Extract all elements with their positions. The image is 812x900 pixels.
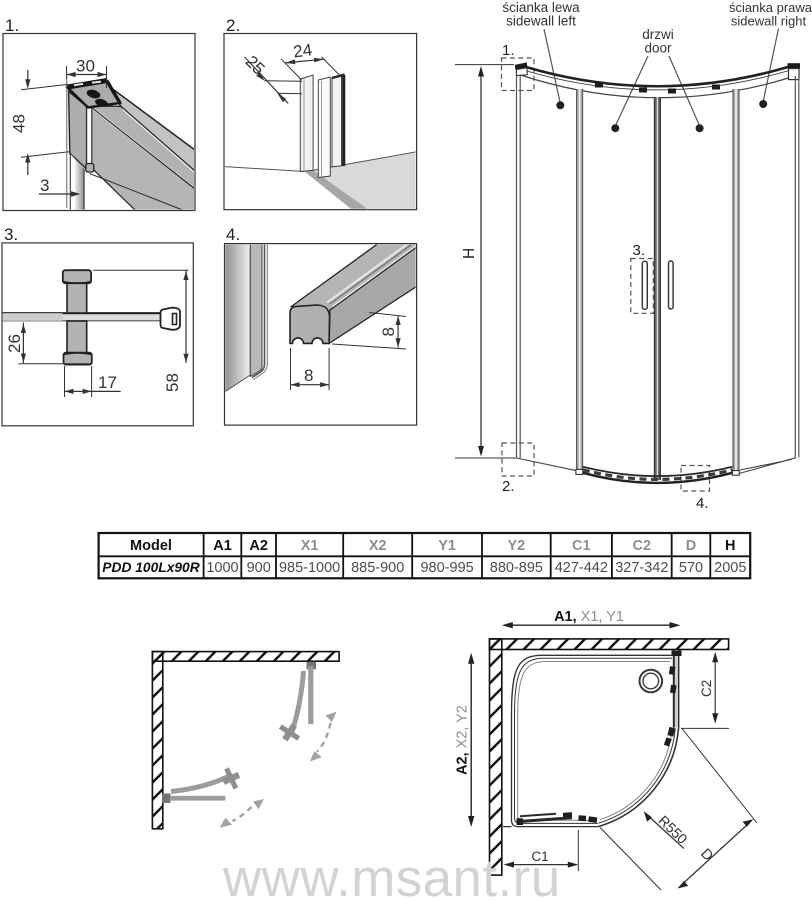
- svg-text:H: H: [461, 248, 478, 259]
- svg-text:3.: 3.: [4, 225, 18, 244]
- svg-text:Y1: Y1: [438, 538, 456, 554]
- svg-text:2.: 2.: [502, 478, 515, 495]
- svg-text:A2: A2: [249, 538, 268, 554]
- svg-text:26: 26: [5, 334, 24, 353]
- svg-text:sidewall right: sidewall right: [731, 14, 807, 29]
- svg-text:8: 8: [379, 327, 398, 336]
- svg-text:980-995: 980-995: [420, 560, 473, 576]
- svg-text:Model: Model: [130, 538, 172, 554]
- svg-text:H: H: [725, 538, 735, 554]
- svg-text:24: 24: [292, 40, 313, 61]
- svg-text:4.: 4.: [226, 225, 240, 244]
- svg-text:C1: C1: [572, 538, 591, 554]
- svg-text:327-342: 327-342: [615, 560, 668, 576]
- svg-text:1.: 1.: [502, 42, 515, 59]
- svg-text:D: D: [686, 538, 696, 554]
- svg-text:900: 900: [247, 560, 271, 576]
- svg-text:A1: A1: [213, 538, 232, 554]
- svg-text:985-1000: 985-1000: [279, 560, 340, 576]
- svg-text:A2, X2, Y2: A2, X2, Y2: [455, 705, 471, 775]
- svg-text:570: 570: [679, 560, 703, 576]
- svg-text:58: 58: [163, 373, 182, 392]
- svg-text:C2: C2: [699, 680, 714, 697]
- svg-text:www.msant.ru: www.msant.ru: [222, 849, 561, 900]
- svg-text:3: 3: [40, 176, 49, 195]
- svg-text:17: 17: [98, 373, 117, 392]
- svg-text:1000: 1000: [206, 560, 238, 576]
- svg-text:885-900: 885-900: [351, 560, 404, 576]
- svg-text:X2: X2: [369, 538, 387, 554]
- svg-text:427-442: 427-442: [555, 560, 608, 576]
- svg-text:3.: 3.: [633, 242, 646, 259]
- svg-text:2.: 2.: [226, 16, 240, 35]
- svg-text:8: 8: [304, 366, 313, 385]
- svg-text:PDD 100Lx90R: PDD 100Lx90R: [102, 560, 199, 575]
- svg-text:X1: X1: [301, 538, 319, 554]
- svg-text:30: 30: [76, 57, 95, 76]
- svg-text:A1, X1, Y1: A1, X1, Y1: [554, 609, 624, 625]
- svg-text:1.: 1.: [5, 16, 19, 35]
- svg-text:C2: C2: [633, 538, 652, 554]
- svg-text:Y2: Y2: [508, 538, 526, 554]
- svg-text:sidewall left: sidewall left: [506, 14, 576, 29]
- svg-text:48: 48: [10, 114, 29, 133]
- svg-text:door: door: [644, 41, 672, 56]
- svg-text:2005: 2005: [714, 560, 746, 576]
- svg-text:4.: 4.: [696, 495, 709, 512]
- svg-text:880-895: 880-895: [490, 560, 543, 576]
